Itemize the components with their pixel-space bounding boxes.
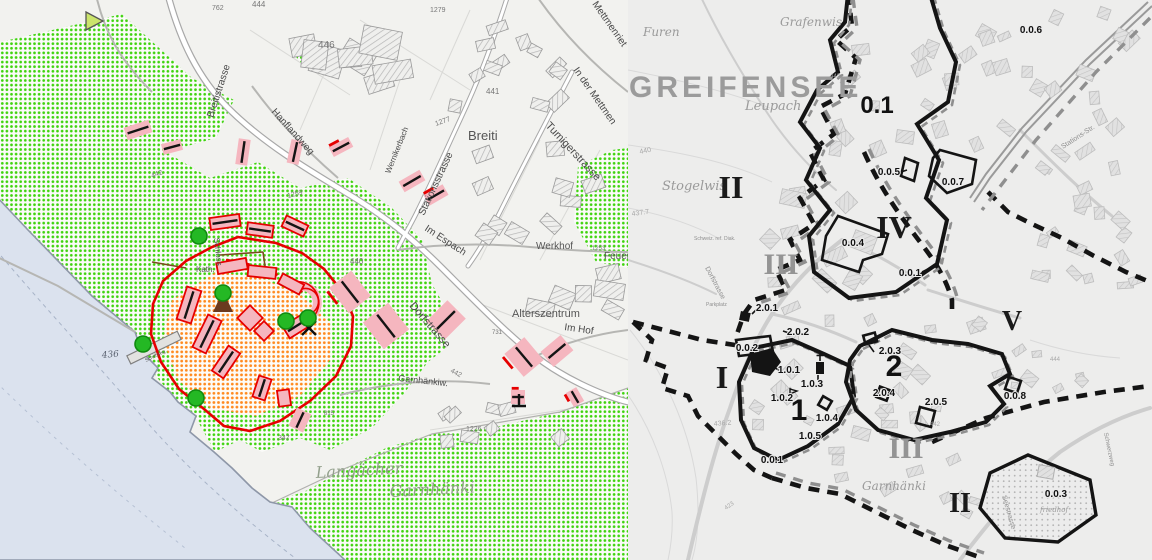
inventory-building	[246, 222, 273, 238]
subzone-label: 0.0.3	[1045, 489, 1068, 500]
subzone-label: 0.0.7	[942, 177, 965, 188]
place-label: Feuerwehr	[604, 251, 628, 262]
left-elevation-labels: 436	[100, 350, 119, 362]
district-numeral: III	[888, 432, 923, 465]
parcel-number: 1253	[592, 246, 606, 252]
inventory-building	[248, 265, 277, 279]
contour-label: 444	[1050, 357, 1061, 363]
parcel-number: 446	[318, 40, 335, 51]
subzone-label: 1.0.3	[801, 379, 824, 390]
subzone-label: 0.0.1	[899, 268, 922, 279]
parcel-number: 347	[278, 435, 290, 442]
place-label: Leupach	[744, 99, 801, 114]
building	[1089, 91, 1100, 105]
district-numeral: III	[763, 248, 798, 281]
parcel-number: 444	[252, 0, 266, 9]
building	[1032, 350, 1042, 357]
protected-tree-icon	[278, 313, 294, 329]
building	[924, 325, 936, 334]
protected-tree-icon	[215, 285, 231, 301]
place-label: Werkhof	[536, 241, 573, 252]
place-label: Grafenwis	[780, 15, 842, 29]
building	[829, 447, 844, 454]
parcel-number: 441	[486, 87, 500, 96]
zone-number: 0.1	[860, 92, 893, 119]
parcel-number: 1279	[430, 7, 446, 14]
subzone-label: 0.0.8	[1004, 391, 1027, 402]
parcel-number: 731	[492, 330, 503, 336]
subzone-label: 0.0.2	[736, 343, 759, 354]
street-label: Parkplatz	[706, 302, 727, 308]
street-label: Schweiz. ref. Diak.	[694, 236, 735, 242]
contour-label: 442	[830, 74, 841, 80]
protected-tree-icon	[135, 336, 151, 352]
subzone-label: 1.0.2	[771, 393, 794, 404]
building	[440, 434, 454, 448]
building	[1073, 193, 1091, 209]
split-map-view: BreitistrasseHanflandwegWernikerbachStat…	[0, 0, 1152, 560]
subzone-label: 2.0.3	[879, 346, 902, 357]
inventory-building	[277, 389, 291, 407]
building	[825, 315, 834, 327]
place-label: friedhof	[1039, 506, 1070, 514]
building	[1094, 207, 1105, 220]
zone-plan-map[interactable]: GREIFENSEE FurenGrafenwisLeupachStogelwi…	[628, 0, 1152, 560]
place-label: Breiti	[468, 128, 498, 143]
parcel-number: 1226	[466, 426, 482, 433]
subzone-label: 2.0.2	[787, 327, 810, 338]
subzone-label: 2.0.1	[756, 303, 779, 314]
district-numeral: IV	[876, 209, 912, 245]
place-label: Kath.	[196, 265, 215, 274]
contour-label: 442	[930, 422, 941, 428]
district-numeral: II	[719, 169, 744, 205]
protected-tree-icon	[188, 390, 204, 406]
protected-tree-icon	[191, 228, 207, 244]
parcel-number: 440	[350, 257, 364, 266]
district-numeral: V	[1002, 306, 1022, 337]
building	[896, 130, 915, 145]
building	[1083, 273, 1094, 284]
zone-number: 1	[791, 394, 808, 427]
landmark-church	[816, 362, 824, 374]
subzone-label: 0.0.5	[878, 167, 901, 178]
place-label: Furen	[642, 25, 680, 39]
building	[1022, 66, 1033, 78]
district-numeral: I	[716, 359, 728, 395]
building	[881, 420, 897, 428]
subzone-label: 2.0.4	[873, 388, 896, 399]
subzone-label: 2.0.5	[925, 397, 948, 408]
place-label: Alterszentrum	[512, 308, 580, 320]
building	[752, 419, 763, 430]
subzone-label: 1.0.5	[799, 431, 822, 442]
building	[832, 455, 843, 466]
parcel-number: 815	[324, 411, 335, 417]
building	[560, 195, 581, 207]
subzone-label: 0.0.6	[1020, 25, 1043, 36]
place-label: Stogelwis	[662, 179, 726, 194]
building	[448, 99, 462, 113]
parcel-number: 762	[212, 5, 224, 12]
building	[575, 285, 591, 302]
place-label: Garnhänki	[862, 479, 926, 493]
subzone-label: 1.0.1	[778, 365, 801, 376]
district-numeral: II	[949, 488, 971, 519]
subzone-label: 1.0.4	[816, 413, 839, 424]
protected-tree-icon	[300, 310, 316, 326]
subzone-label: 0.0.1	[761, 455, 784, 466]
protection-zones-map[interactable]: BreitistrasseHanflandwegWernikerbachStat…	[0, 0, 628, 560]
elevation-label: 436	[100, 350, 119, 362]
subzone-label: 0.0.4	[842, 238, 865, 249]
